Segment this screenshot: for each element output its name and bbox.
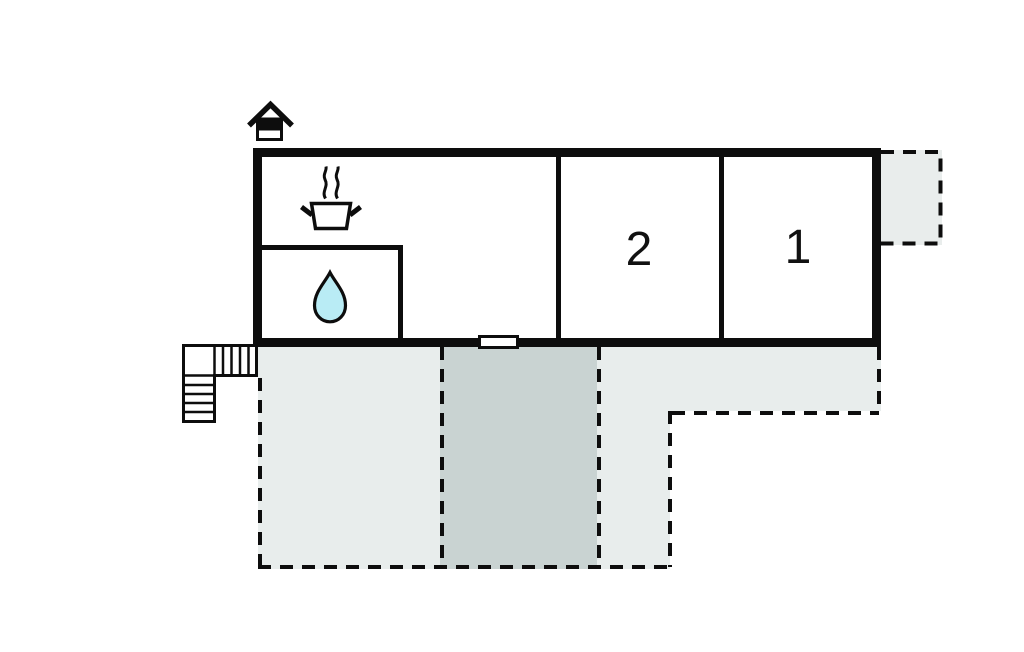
entrance-house-icon <box>249 105 292 140</box>
floor-plan-canvas: 2 1 <box>0 0 1024 652</box>
terrace-covered-area <box>440 347 597 569</box>
room-2-label: 2 <box>589 223 689 277</box>
floor-plan-drawing <box>0 0 1024 652</box>
pot-body <box>312 204 351 229</box>
terrace <box>258 347 881 569</box>
annex-area <box>881 150 942 245</box>
annex <box>881 150 942 245</box>
stairs-outline <box>184 346 257 422</box>
door <box>480 337 518 348</box>
stairs <box>184 346 257 422</box>
room-1-label: 1 <box>748 221 848 275</box>
